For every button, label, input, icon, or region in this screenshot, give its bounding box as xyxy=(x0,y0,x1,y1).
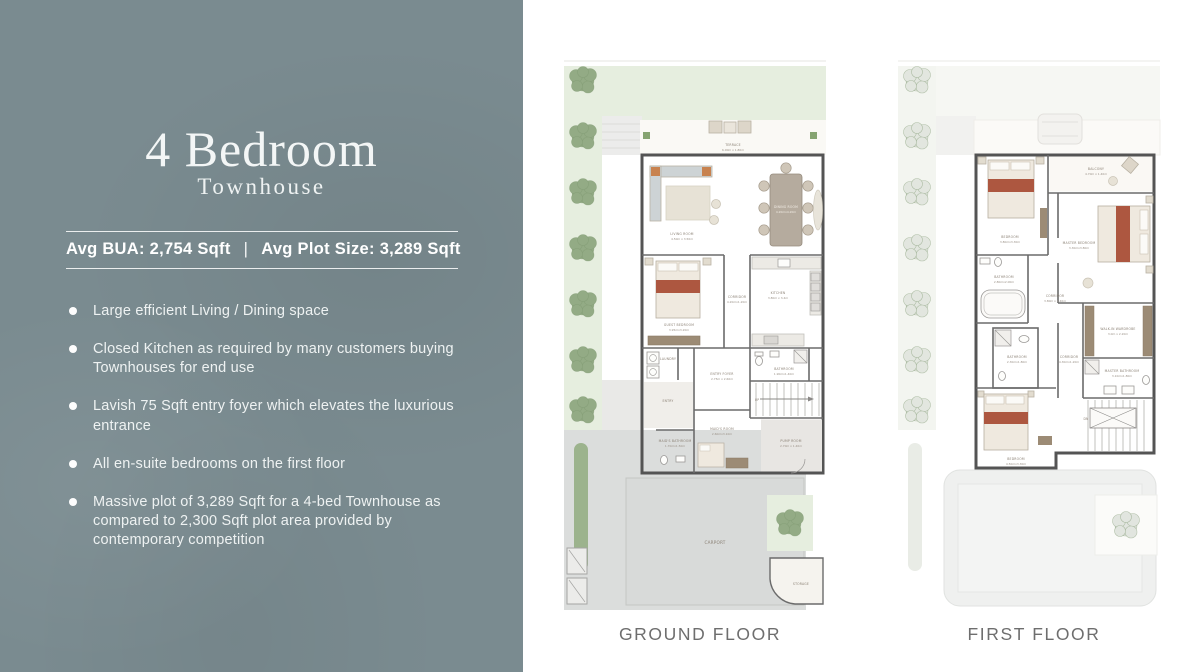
room-label: BATHROOM xyxy=(774,367,794,371)
ground-floor-plan-drawing: CARPORT STORAGE TERRACE 6.00m x 1.80m LI… xyxy=(564,58,836,610)
room-dims: 3.80mx3.30m xyxy=(1000,240,1020,244)
stat-plot-size: Avg Plot Size: 3,289 Sqft xyxy=(261,240,460,258)
tree-icon xyxy=(1113,512,1140,539)
room-label: MASTER BEDROOM xyxy=(1063,241,1096,245)
room-label: ENTRY FOYER xyxy=(710,372,734,376)
bullet-text: Massive plot of 3,289 Sqft for a 4-bed T… xyxy=(93,494,441,548)
bullet-item: Closed Kitchen as required by many custo… xyxy=(68,340,464,378)
entry: ENTRY xyxy=(644,382,693,428)
room-dims: 4.70m x 1.40m xyxy=(1085,172,1107,176)
bullet-text: All en-suite bedrooms on the first floor xyxy=(93,456,345,472)
ground-floor-plan: CARPORT STORAGE TERRACE 6.00m x 1.80m LI… xyxy=(564,58,836,610)
tree-icon xyxy=(777,510,804,537)
bedroom-2: BEDROOM 4.50mx3.30m xyxy=(978,391,1052,466)
corridor-1: CORRIDOR 3.80m x 1.40m xyxy=(1044,294,1066,303)
room-label: BATHROOM xyxy=(1007,355,1027,359)
room-label: CORRIDOR xyxy=(1060,355,1079,359)
bullet-text: Closed Kitchen as required by many custo… xyxy=(93,341,454,376)
page-subtitle: Townhouse xyxy=(0,174,523,200)
stairs-down: DN xyxy=(1083,400,1144,451)
bullet-dot-icon xyxy=(69,460,77,468)
caption-first-floor: FIRST FLOOR xyxy=(898,624,1170,645)
room-label: LAUNDRY xyxy=(660,357,676,361)
room-label: PUMP ROOM xyxy=(780,439,801,443)
laundry-room: LAUNDRY xyxy=(647,352,676,378)
room-dims: 6.00m x 1.80m xyxy=(722,148,744,152)
bullet-dot-icon xyxy=(69,498,77,506)
room-dims: 4.50m x 3.50m xyxy=(671,237,693,241)
bathroom: BATHROOM 1.90mx1.40m xyxy=(755,350,807,376)
feature-bullet-list: Large efficient Living / Dining space Cl… xyxy=(68,302,464,569)
room-label: GUEST BEDROOM xyxy=(664,323,694,327)
room-dims: 4.20mx4.20m xyxy=(776,210,796,214)
info-panel: 4 Bedroom Townhouse Avg BUA: 2,754 Sqft|… xyxy=(0,0,523,672)
first-floor-plan-drawing: BALCONY 4.70m x 1.40m BEDROOM 3.80mx3.30… xyxy=(898,58,1170,610)
stat-separator: | xyxy=(244,240,249,258)
room-dims: 4.50mx3.30m xyxy=(1006,462,1026,466)
stairs-up: UP xyxy=(755,383,819,416)
room-dims: 2.80mx2.00m xyxy=(994,280,1014,284)
entry-foyer: ENTRY FOYER 2.75m x 2.60m xyxy=(710,372,734,381)
master-bathroom: MASTER BATHROOM 3.10mx1.80m xyxy=(1085,360,1150,394)
room-label: WALK-IN WARDROBE xyxy=(1100,327,1135,331)
room-label: BEDROOM xyxy=(1001,235,1019,239)
room-label: DINING ROOM xyxy=(774,205,798,209)
room-label: MASTER BATHROOM xyxy=(1105,369,1140,373)
stairs-direction-label: UP xyxy=(755,398,760,402)
bathroom-2: BATHROOM 2.30mx1.80m xyxy=(995,330,1029,381)
stairs-direction-label: DN xyxy=(1083,417,1089,421)
master-bedroom: MASTER BEDROOM 3.30mx3.80m xyxy=(1063,196,1153,288)
guest-bedroom: GUEST BEDROOM 3.95mx3.20m xyxy=(645,258,711,345)
bullet-item: Lavish 75 Sqft entry foyer which elevate… xyxy=(68,397,464,435)
room-dims: 3.80m x 3.4m xyxy=(768,296,788,300)
room-dims: 3.0m x 2.20m xyxy=(1108,332,1128,336)
kitchen: KITCHEN 3.80m x 3.4m xyxy=(752,257,821,346)
room-dims: 2.30mx1.80m xyxy=(1007,360,1027,364)
room-label: CORRIDOR xyxy=(728,295,747,299)
room-label: BATHROOM xyxy=(994,275,1014,279)
corridor-2: CORRIDOR 4.30mx1.20m xyxy=(1059,355,1079,364)
room-dims: 3.30mx3.80m xyxy=(1069,246,1089,250)
room-label: CARPORT xyxy=(704,540,725,545)
stats-bar: Avg BUA: 2,754 Sqft|Avg Plot Size: 3,289… xyxy=(66,231,458,269)
room-label: CORRIDOR xyxy=(1046,294,1065,298)
bullet-item: Massive plot of 3,289 Sqft for a 4-bed T… xyxy=(68,493,464,550)
room-dims: 1.90mx1.40m xyxy=(774,372,794,376)
bedroom-1: BEDROOM 3.80mx3.30m xyxy=(978,157,1047,244)
walk-in-wardrobe: WALK-IN WARDROBE 3.0m x 2.20m xyxy=(1085,306,1152,356)
room-dims: 4.30mx1.20m xyxy=(1059,360,1079,364)
dining-room: DINING ROOM 4.20mx4.20m xyxy=(759,163,823,246)
bullet-item: All en-suite bedrooms on the first floor xyxy=(68,455,464,474)
room-label: KITCHEN xyxy=(771,291,786,295)
room-dims: 2.75m x 2.60m xyxy=(711,377,733,381)
room-label: MAID'S ROOM xyxy=(710,427,734,431)
bullet-text: Large efficient Living / Dining space xyxy=(93,303,329,319)
corridor: CORRIDOR 4.20mx1.20m xyxy=(727,295,747,304)
bullet-dot-icon xyxy=(69,345,77,353)
room-dims: 2.70m x 1.40m xyxy=(780,444,802,448)
bullet-item: Large efficient Living / Dining space xyxy=(68,302,464,321)
page-title: 4 Bedroom xyxy=(0,120,523,178)
room-dims: 1.70mx1.50m xyxy=(665,444,685,448)
room-label: ENTRY xyxy=(663,399,674,403)
bullet-text: Lavish 75 Sqft entry foyer which elevate… xyxy=(93,398,454,433)
bullet-dot-icon xyxy=(69,307,77,315)
room-label: TERRACE xyxy=(724,143,741,147)
room-dims: 4.20mx1.20m xyxy=(727,300,747,304)
room-dims: 3.80m x 1.40m xyxy=(1044,299,1066,303)
room-label: MAID'S BATHROOM xyxy=(659,439,692,443)
bathroom-1: BATHROOM 2.80mx2.00m xyxy=(980,258,1025,319)
storage-room: STORAGE xyxy=(770,558,823,604)
caption-ground-floor: GROUND FLOOR xyxy=(564,624,836,645)
living-room: LIVING ROOM 4.50m x 3.50m xyxy=(650,166,721,241)
stat-bua: Avg BUA: 2,754 Sqft xyxy=(66,240,231,258)
room-dims: 2.60mx3.10m xyxy=(712,432,732,436)
room-label: BEDROOM xyxy=(1007,457,1025,461)
pump-room: PUMP ROOM 2.70m x 1.40m xyxy=(761,420,822,474)
room-label: LIVING ROOM xyxy=(670,232,693,236)
first-floor-plan: BALCONY 4.70m x 1.40m BEDROOM 3.80mx3.30… xyxy=(898,58,1170,610)
room-dims: 3.10mx1.80m xyxy=(1112,374,1132,378)
room-label: BALCONY xyxy=(1088,167,1104,171)
room-label: STORAGE xyxy=(793,582,809,586)
room-dims: 3.95mx3.20m xyxy=(669,328,689,332)
bullet-dot-icon xyxy=(69,402,77,410)
